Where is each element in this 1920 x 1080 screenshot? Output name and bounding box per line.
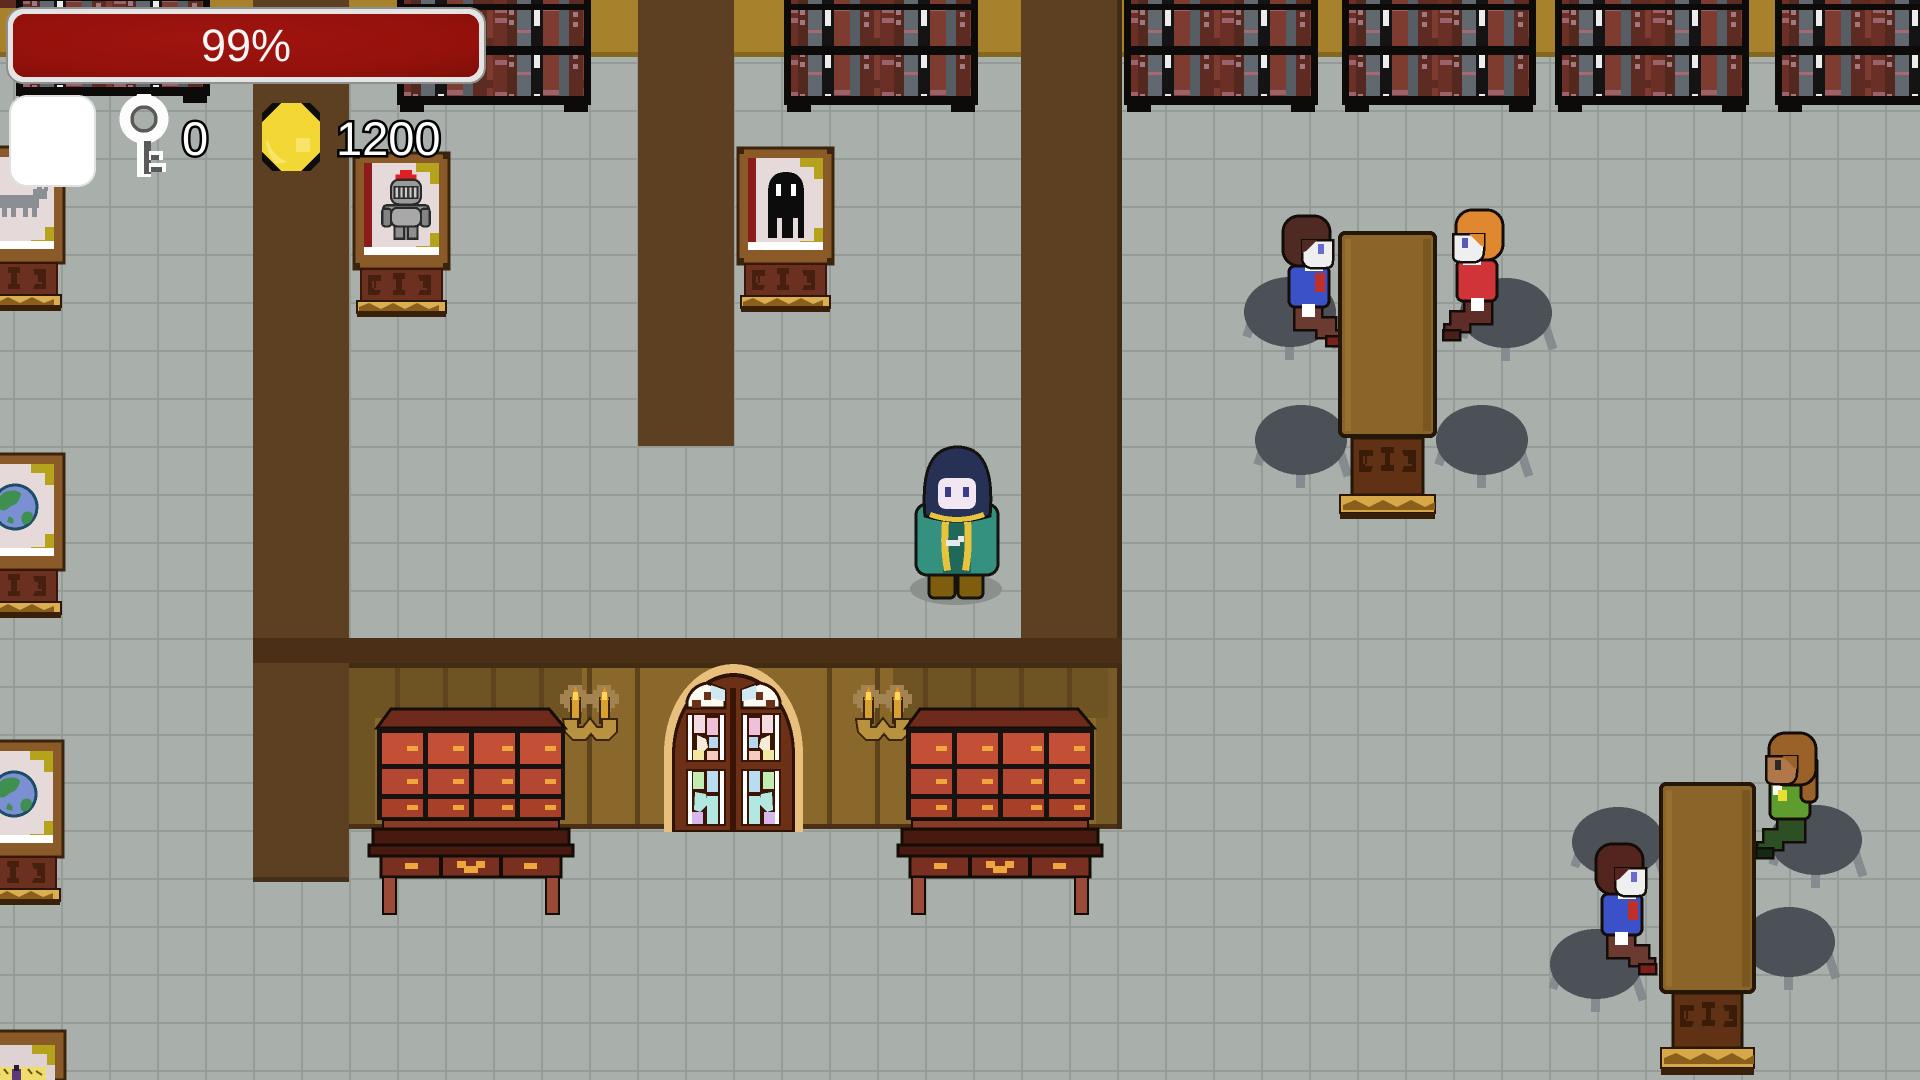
svg-text:1200: 1200 xyxy=(336,112,441,165)
svg-text:99%: 99% xyxy=(201,20,291,71)
svg-text:0: 0 xyxy=(182,112,208,165)
